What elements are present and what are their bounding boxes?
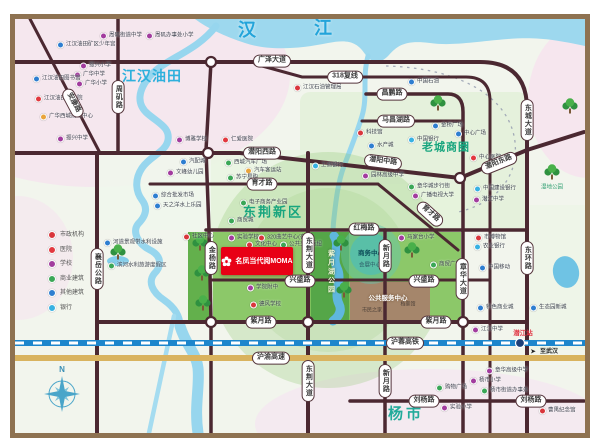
poi-marker: 章华城步行街 — [408, 184, 450, 191]
poi-marker: 滨河水利旅游度假区 — [108, 263, 167, 270]
legend-dot-icon — [48, 304, 56, 312]
poi-marker: 天之洋水上乐园 — [154, 203, 202, 210]
other-poi-dot — [477, 305, 484, 312]
poi-marker: 广华小学 — [76, 81, 107, 88]
poi-label: 德风学校 — [259, 302, 281, 308]
commercial-poi-dot — [108, 263, 115, 270]
poi-marker: 汽车客运站 — [245, 168, 282, 175]
poi-marker: 西城汽车广场 — [225, 160, 267, 167]
legend-dot-icon — [48, 260, 56, 268]
poi-label: 杨市街道办事处 — [490, 388, 529, 394]
commercial-poi-dot — [481, 388, 488, 395]
gov-poi-dot — [183, 234, 190, 241]
to-wuhan-label: 至武汉 — [540, 349, 558, 355]
poi-label: 金桥广场 — [441, 123, 463, 129]
poi-label: 水产城 — [377, 143, 394, 149]
gov-poi-dot — [258, 235, 265, 242]
ziyue-lake-park-label: 紫月湖公园 — [328, 250, 335, 295]
other-poi-dot — [33, 76, 40, 83]
poi-marker: 振兴小学 — [80, 63, 111, 70]
school-poi-dot — [486, 368, 493, 375]
poi-label: 周矶街道中学 — [109, 33, 142, 39]
poi-label: 中心广场 — [464, 131, 486, 137]
labels-layer: 汉江江汉油田东荆新区老城商圈杨市紫月湖公园商务中心会展中心公共服务中心市民之家档… — [0, 0, 600, 444]
han-river-label-2: 江 — [314, 19, 332, 37]
school-poi-dot — [470, 378, 477, 385]
road-label: 东荆大道 — [302, 360, 315, 402]
legend-dot-icon — [48, 231, 56, 239]
other-poi-dot — [368, 143, 375, 150]
legend-dot-icon — [48, 246, 56, 254]
road-label: 潜阳西路 — [243, 147, 281, 160]
road-label: 新月路 — [379, 364, 392, 398]
qianjiang-station-label: 潜江站 — [513, 331, 533, 338]
bank-poi-dot — [408, 137, 415, 144]
poi-label: 广播电视大学 — [421, 193, 454, 199]
poi-label: 文峰幼儿园 — [176, 170, 204, 176]
project-marker: 名凤当代阅MOMA — [221, 247, 293, 275]
poi-label: 广华小学 — [85, 81, 107, 87]
poi-label: 广华中学 — [83, 72, 105, 78]
poi-label: 马家台小学 — [407, 235, 435, 241]
school-poi-dot — [247, 285, 254, 292]
legend-label: 市政机构 — [60, 232, 84, 238]
road-label: 东城大道 — [521, 99, 534, 141]
poi-marker: 园林高级中学 — [362, 173, 404, 180]
legend-item: 银行 — [48, 304, 84, 312]
poi-marker: 实验小学 — [441, 405, 472, 412]
poi-label: 综合批发市场 — [161, 193, 194, 199]
commercial-poi-dot — [228, 218, 235, 225]
legend-item: 商业建筑 — [48, 275, 84, 283]
poi-marker: 实验学校 — [228, 235, 259, 242]
school-poi-dot — [441, 405, 448, 412]
poi-marker: 文峰幼儿园 — [167, 170, 204, 177]
legend-label: 商业建筑 — [60, 276, 84, 282]
poi-label: 章华高级中学 — [495, 368, 528, 374]
legend-dot-icon — [48, 289, 56, 297]
transport-poi-dot — [245, 168, 252, 175]
poi-label: 曹禺纪念馆 — [548, 408, 576, 414]
project-name: 名凤当代阅MOMA — [235, 256, 292, 266]
road-label: 育才路 — [414, 199, 446, 229]
poi-marker: 购物广场 — [436, 385, 467, 392]
hospital-poi-dot — [35, 96, 42, 103]
poi-label: 章华城步行街 — [417, 184, 450, 190]
poi-label: 工商银行 — [321, 163, 343, 169]
poi-marker: 江汉中学 — [472, 327, 503, 334]
road-label: 紫月路 — [246, 316, 277, 329]
poi-marker: 马家台小学 — [398, 235, 435, 242]
road-label: 章华大道 — [456, 258, 469, 300]
poi-label: 中国石油 — [417, 79, 439, 85]
poi-marker: 杨市街道办事处 — [481, 388, 529, 395]
poi-marker: 特色商业城 — [477, 305, 514, 312]
poi-label: 杨市小学 — [479, 378, 501, 384]
poi-marker: 中国移动 — [479, 265, 510, 272]
poi-marker: 生态园新城 — [530, 305, 567, 312]
other-poi-dot — [479, 265, 486, 272]
poi-label: 实验学校 — [237, 235, 259, 241]
poi-marker: 科技馆 — [357, 130, 383, 137]
poi-marker: 广播电视大学 — [412, 193, 454, 200]
poi-label: 振兴小学 — [89, 63, 111, 69]
poi-marker: 章华高级中学 — [486, 368, 528, 375]
school-poi-dot — [167, 170, 174, 177]
poi-marker: 中国石油 — [408, 79, 439, 86]
poi-marker: 中国建设银行 — [474, 186, 516, 193]
poi-label: 生态园新城 — [539, 305, 567, 311]
compass-star-icon — [42, 374, 82, 414]
school-poi-dot — [398, 235, 405, 242]
road-label: 新月路 — [379, 239, 392, 273]
frame-margin-left — [0, 0, 10, 444]
school-poi-dot — [80, 63, 87, 70]
poi-marker: 工商银行 — [312, 163, 343, 170]
poi-marker: 博雅学校 — [176, 137, 207, 144]
other-poi-dot — [432, 123, 439, 130]
legend-item: 市政机构 — [48, 231, 84, 239]
poi-marker: 综合批发市场 — [152, 193, 194, 200]
road-label: 兴盛路 — [409, 275, 440, 288]
poi-label: 周矶办事处小学 — [155, 33, 194, 39]
poi-label: 振兴中学 — [66, 136, 88, 142]
poi-marker: 水产城 — [368, 143, 394, 150]
poi-marker: 市博物馆 — [475, 235, 506, 242]
commercial-poi-dot — [227, 175, 234, 182]
poi-label: 社区中心 — [192, 234, 214, 240]
other-poi-dot — [455, 131, 462, 138]
other-poi-dot — [104, 240, 111, 247]
citizen-home-label: 市民之家 — [362, 309, 382, 314]
legend-label: 学校 — [60, 261, 72, 267]
poi-label: 汽车客运站 — [254, 168, 282, 174]
school-poi-dot — [146, 33, 153, 40]
jianghan-oilfield-label: 江汉油田 — [122, 69, 182, 83]
poi-label: 学院附中 — [256, 285, 278, 291]
poi-marker: 德风学校 — [250, 302, 281, 309]
school-poi-dot — [472, 327, 479, 334]
poi-marker: 中国银行 — [408, 137, 439, 144]
school-poi-dot — [100, 33, 107, 40]
bank-poi-dot — [474, 186, 481, 193]
poi-label: 农业银行 — [483, 244, 505, 250]
poi-label: 特色商业城 — [486, 305, 514, 311]
other-poi-dot — [154, 203, 161, 210]
poi-marker: 周矶街道中学 — [100, 33, 142, 40]
poi-label: 中国移动 — [488, 265, 510, 271]
map-legend: 市政机构医院学校商业建筑其他建筑银行 — [48, 231, 84, 318]
other-poi-dot — [152, 193, 159, 200]
poi-label: 商贸城 — [237, 218, 254, 224]
poi-marker: 社区中心 — [183, 234, 214, 241]
compass-north-label: N — [40, 366, 84, 374]
bank-poi-dot — [474, 244, 481, 251]
poi-marker: 杨市小学 — [470, 378, 501, 385]
poi-marker: 广华西城商业中心 — [40, 114, 93, 121]
hospital-poi-dot — [222, 137, 229, 144]
poi-label: 广华西城商业中心 — [49, 114, 93, 120]
transport-poi-dot — [40, 114, 47, 121]
poi-label: 中国建设银行 — [483, 186, 516, 192]
bank-poi-dot — [312, 163, 319, 170]
archives-label: 档案馆 — [400, 303, 415, 308]
legend-item: 学校 — [48, 260, 84, 268]
poi-label: 汽配城 — [189, 159, 206, 165]
road-label: 沪渝高速 — [252, 352, 290, 365]
poi-marker: 电子商务产业园 — [240, 200, 288, 207]
other-poi-dot — [530, 305, 537, 312]
school-poi-dot — [176, 137, 183, 144]
poi-marker: 农业银行 — [474, 244, 505, 251]
map-screenshot: 汉江江汉油田东荆新区老城商圈杨市紫月湖公园商务中心会展中心公共服务中心市民之家档… — [0, 0, 600, 444]
poi-marker: 学院附中 — [247, 285, 278, 292]
poi-label: 天之洋水上乐园 — [163, 203, 202, 209]
road-label: 周矶路 — [112, 80, 125, 114]
commercial-poi-dot — [240, 200, 247, 207]
commercial-poi-dot — [430, 262, 437, 269]
legend-label: 其他建筑 — [60, 290, 84, 296]
school-poi-dot — [57, 136, 64, 143]
road-label: 昌鹏路 — [377, 88, 408, 101]
wetland-park-label: 湿地公园 — [541, 185, 563, 191]
poi-label: 仁爱医院 — [231, 137, 253, 143]
poi-marker: 江汉石油管理局 — [294, 85, 342, 92]
poi-label: 市博物馆 — [484, 235, 506, 241]
poi-label: 实验小学 — [450, 405, 472, 411]
road-label: 刘杨路 — [409, 395, 440, 408]
road-label: 318复线 — [327, 71, 363, 84]
road-label: 红梅路 — [349, 223, 380, 236]
poi-marker: 江汉油田图书馆 — [33, 76, 81, 83]
legend-label: 银行 — [60, 305, 72, 311]
other-poi-dot — [180, 159, 187, 166]
school-poi-dot — [473, 197, 480, 204]
commercial-poi-dot — [436, 385, 443, 392]
poi-marker: 江汉油田矿区少年宫 — [57, 42, 116, 49]
road-label: 潜阳中路 — [363, 153, 402, 170]
poi-label: 江汉油田图书馆 — [42, 76, 81, 82]
road-label: 刘杨路 — [516, 395, 547, 408]
road-label: 金杨路 — [205, 241, 218, 275]
legend-item: 其他建筑 — [48, 289, 84, 297]
poi-marker: 河道景观带水利设施 — [104, 240, 163, 247]
poi-label: 江汉油田矿区少年宫 — [66, 42, 116, 48]
frame-margin-bottom — [0, 438, 600, 444]
poi-label: 购物广场 — [445, 385, 467, 391]
poi-marker: 商贸城 — [228, 218, 254, 225]
poi-label: 中国银行 — [417, 137, 439, 143]
legend-dot-icon — [48, 275, 56, 283]
poi-marker: 振兴中学 — [57, 136, 88, 143]
road-label: 东荆大道 — [302, 232, 315, 274]
gov-poi-dot — [357, 130, 364, 137]
legend-item: 医院 — [48, 246, 84, 254]
to-wuhan-arrow-icon: ➤ — [530, 349, 536, 356]
poi-marker: 汽配城 — [180, 159, 206, 166]
poi-marker: 金桥广场 — [432, 123, 463, 130]
poi-marker: 曹禺纪念馆 — [539, 408, 576, 415]
commercial-poi-dot — [408, 184, 415, 191]
frame-margin-top — [0, 0, 600, 14]
road-label: 育才路 — [247, 178, 278, 191]
compass-rose: N — [40, 366, 84, 419]
hospital-poi-dot — [470, 155, 477, 162]
road-label: 襄岳公路 — [91, 248, 104, 290]
han-river-label-1: 汉 — [238, 21, 256, 39]
yangshi-label: 杨市 — [388, 407, 424, 422]
poi-label: 西城汽车广场 — [234, 160, 267, 166]
road-label: 广泽大道 — [253, 55, 291, 68]
poi-label: 江汉中学 — [481, 327, 503, 333]
project-logo-flower-icon — [221, 256, 232, 267]
road-label: 东环路 — [521, 241, 534, 275]
poi-label: 电子商务产业园 — [249, 200, 288, 206]
poi-marker: 中心广场 — [455, 131, 486, 138]
road-label: 紫月路 — [421, 316, 452, 329]
poi-marker: 潜江中学 — [473, 197, 504, 204]
school-poi-dot — [228, 235, 235, 242]
school-poi-dot — [362, 173, 369, 180]
other-poi-dot — [408, 79, 415, 86]
frame-margin-right — [590, 0, 600, 444]
poi-label: 园林高级中学 — [371, 173, 404, 179]
poi-label: 河道景观带水利设施 — [113, 240, 163, 246]
gov-poi-dot — [539, 408, 546, 415]
poi-label: 滨河水利旅游度假区 — [117, 263, 167, 269]
gov-poi-dot — [294, 85, 301, 92]
school-poi-dot — [412, 193, 419, 200]
road-label: 马昌湖路 — [377, 115, 415, 128]
poi-label: 潜江中学 — [482, 197, 504, 203]
old-town-cbd-label: 老城商圈 — [422, 143, 470, 154]
road-label: 兴盛路 — [285, 275, 316, 288]
poi-label: 博雅学校 — [185, 137, 207, 143]
road-label: 沪蓉高铁 — [386, 337, 424, 350]
poi-label: 江汉石油管理局 — [303, 85, 342, 91]
gov-poi-dot — [250, 302, 257, 309]
gov-poi-dot — [475, 235, 482, 242]
legend-label: 医院 — [60, 247, 72, 253]
other-poi-dot — [57, 42, 64, 49]
poi-marker: 周矶办事处小学 — [146, 33, 194, 40]
poi-marker: 仁爱医院 — [222, 137, 253, 144]
poi-label: 科技馆 — [366, 130, 383, 136]
commercial-poi-dot — [225, 160, 232, 167]
